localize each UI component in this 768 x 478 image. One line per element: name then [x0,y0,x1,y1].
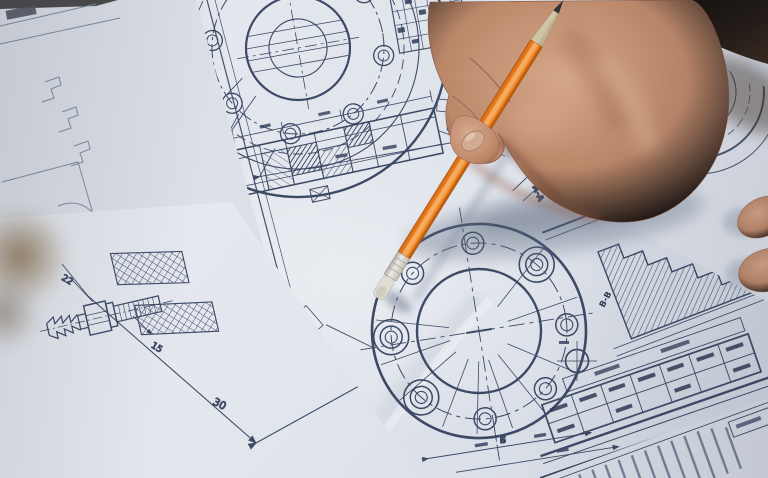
foreground [0,0,768,478]
fingertips [723,188,768,299]
blueprint-photo-scene: Б-Б А-А [0,0,768,478]
